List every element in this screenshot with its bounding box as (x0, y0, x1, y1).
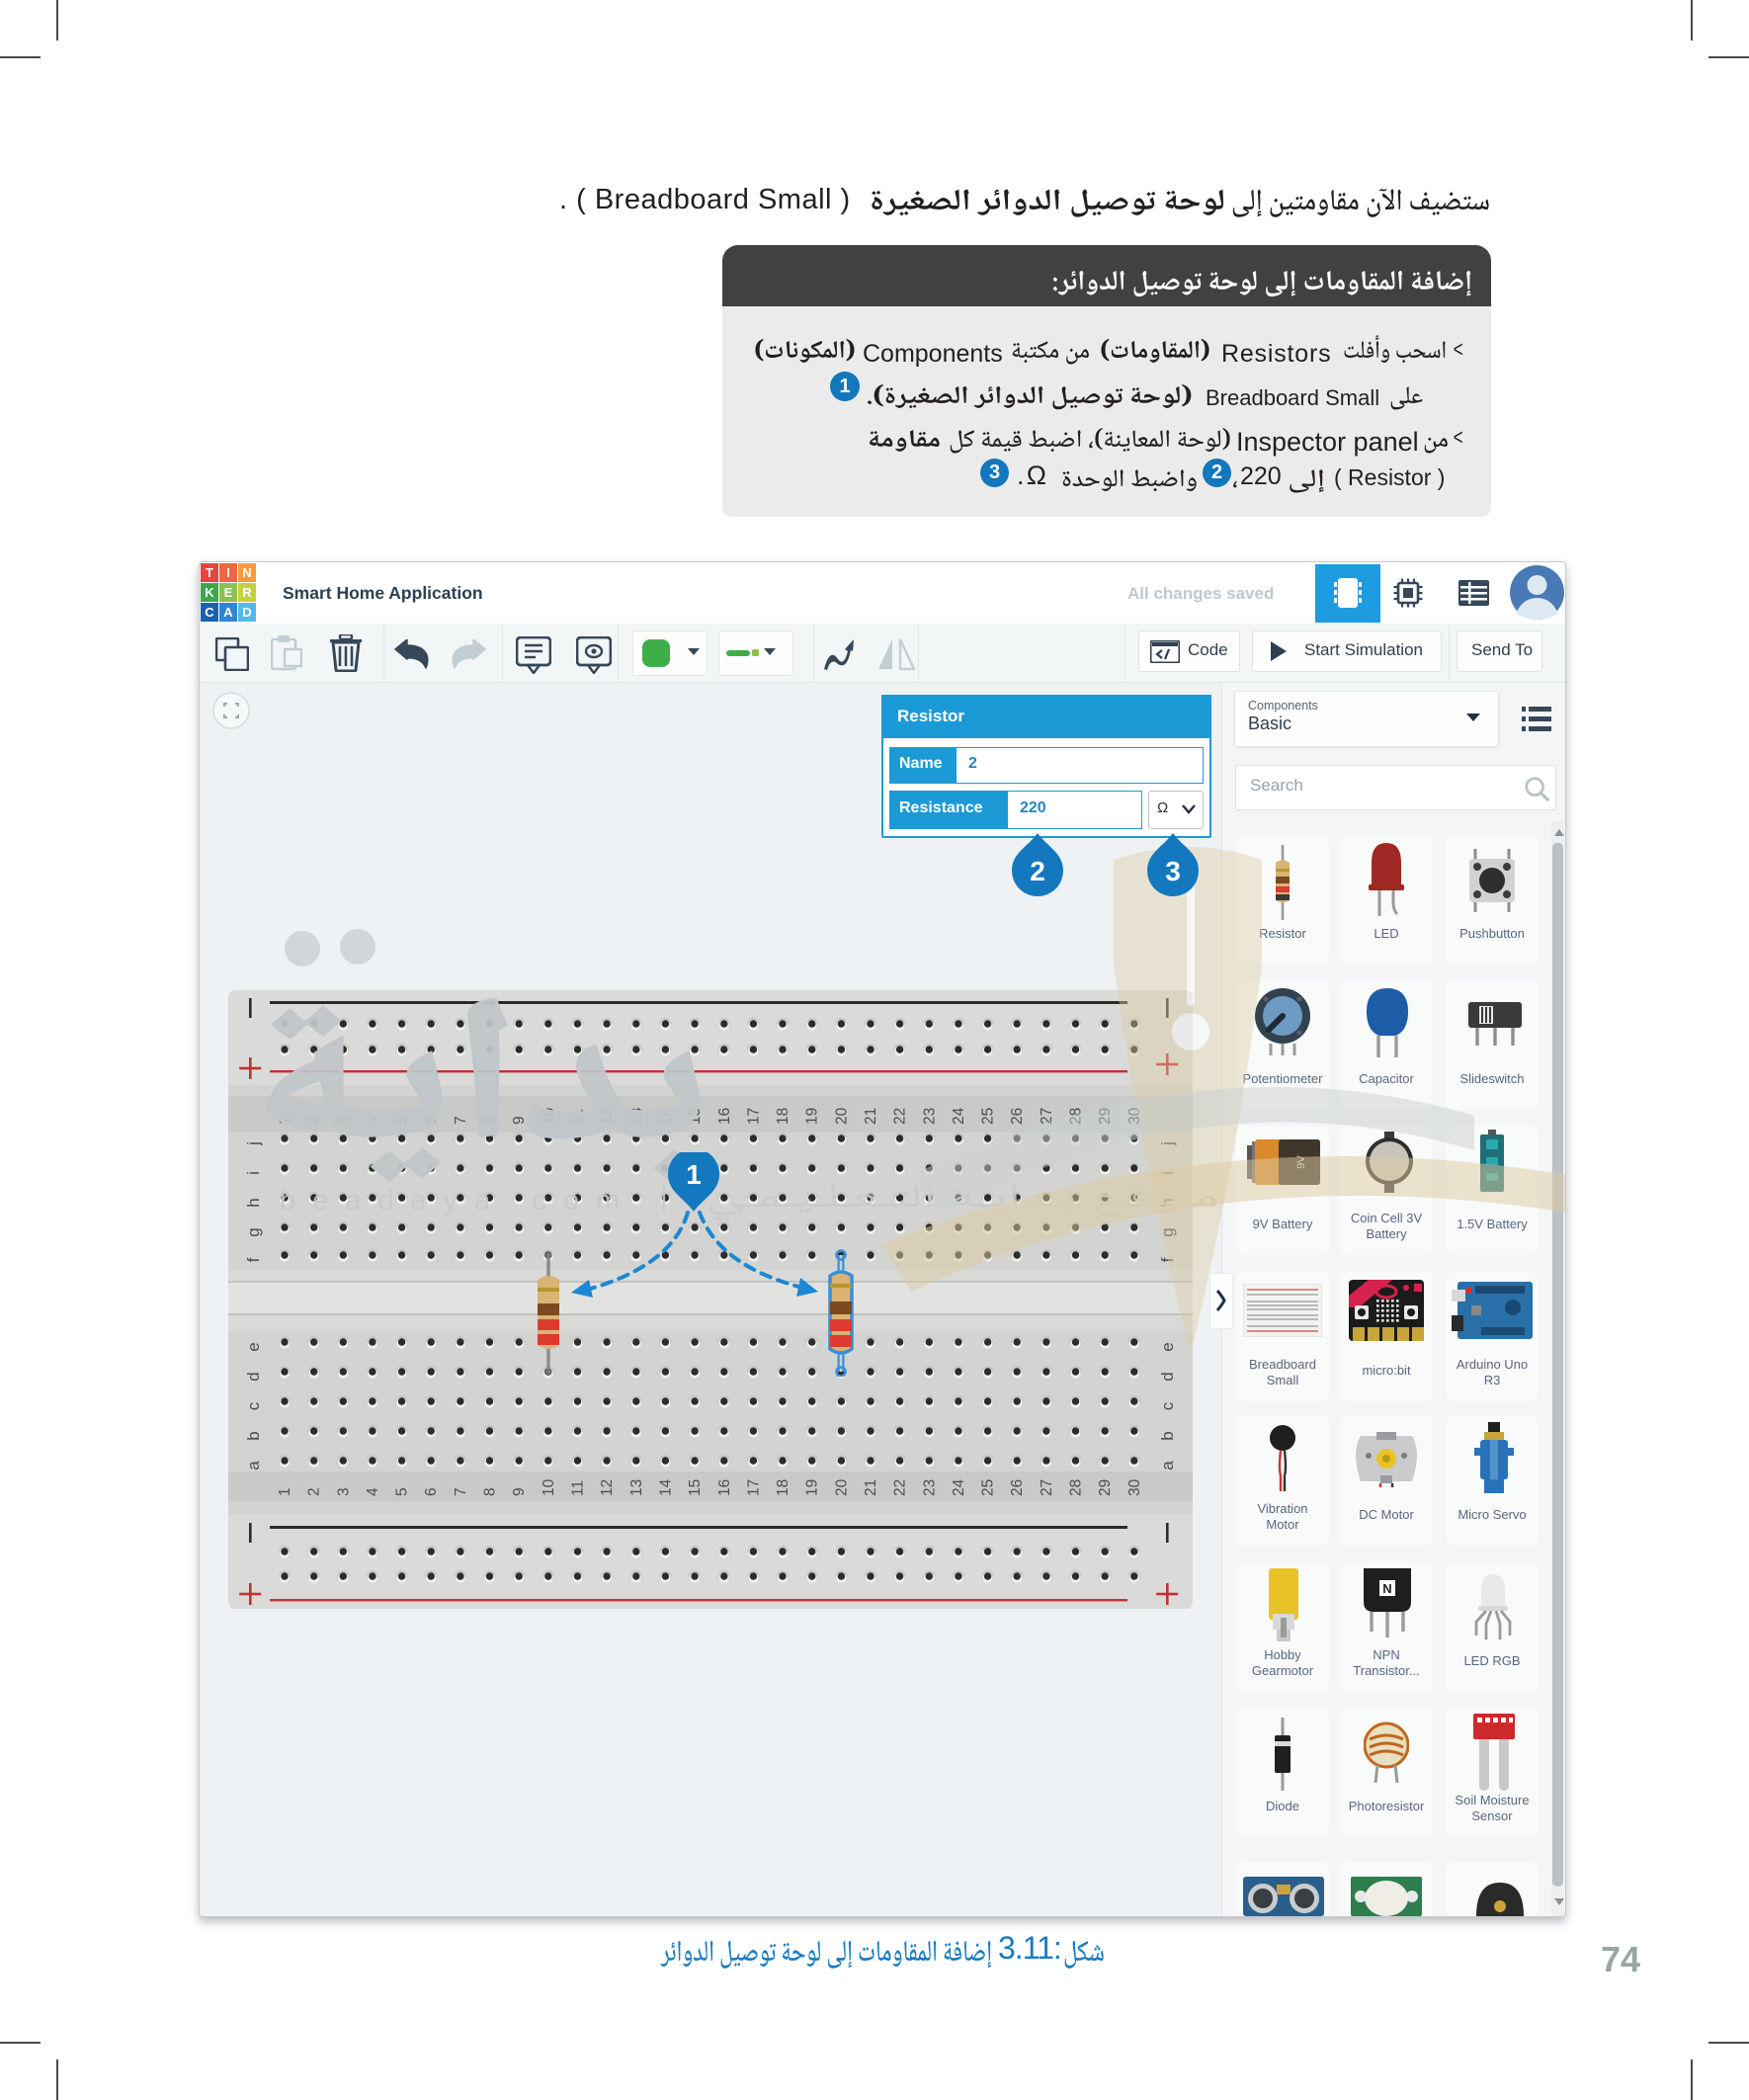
svg-text:25: 25 (980, 1108, 997, 1125)
svg-text:3: 3 (1165, 856, 1181, 886)
svg-text:18: 18 (775, 1479, 791, 1496)
svg-text:26: 26 (1009, 1479, 1026, 1496)
svg-text:i: i (244, 1171, 263, 1175)
svg-text:9: 9 (511, 1116, 528, 1125)
svg-text:h: h (244, 1198, 263, 1207)
svg-text:26: 26 (1009, 1108, 1026, 1125)
svg-text:1: 1 (277, 1116, 293, 1125)
svg-text:13: 13 (628, 1108, 645, 1125)
svg-text:27: 27 (1039, 1479, 1055, 1496)
svg-text:22: 22 (892, 1108, 909, 1125)
svg-text:11: 11 (570, 1480, 587, 1496)
svg-text:10: 10 (541, 1107, 557, 1125)
svg-text:14: 14 (657, 1478, 674, 1496)
svg-text:7: 7 (453, 1487, 469, 1496)
svg-text:12: 12 (599, 1479, 616, 1496)
svg-text:5: 5 (394, 1116, 411, 1125)
svg-text:8: 8 (482, 1116, 499, 1125)
svg-text:30: 30 (1126, 1478, 1143, 1496)
svg-text:12: 12 (599, 1108, 616, 1125)
svg-text:28: 28 (1068, 1108, 1085, 1125)
svg-text:19: 19 (804, 1108, 821, 1125)
svg-text:16: 16 (716, 1108, 733, 1125)
svg-text:27: 27 (1039, 1108, 1055, 1125)
svg-text:20: 20 (833, 1107, 850, 1125)
svg-text:f: f (244, 1257, 263, 1262)
svg-text:28: 28 (1068, 1479, 1085, 1496)
svg-text:j: j (244, 1141, 263, 1146)
svg-text:21: 21 (863, 1108, 879, 1125)
svg-text:20: 20 (833, 1478, 850, 1496)
svg-text:2: 2 (306, 1487, 323, 1496)
svg-text:a: a (244, 1461, 263, 1470)
svg-text:16: 16 (716, 1479, 733, 1496)
svg-text:21: 21 (863, 1479, 879, 1496)
svg-text:8: 8 (482, 1487, 499, 1496)
svg-text:N: N (1382, 1581, 1391, 1596)
svg-text:19: 19 (804, 1479, 821, 1496)
svg-text:9: 9 (511, 1487, 528, 1496)
svg-text:h: h (1158, 1198, 1177, 1207)
svg-text:b: b (1158, 1431, 1177, 1440)
svg-text:d: d (244, 1372, 263, 1381)
svg-text:c: c (244, 1401, 263, 1410)
svg-text:3: 3 (335, 1487, 352, 1496)
svg-text:c: c (1158, 1401, 1177, 1410)
svg-text:30: 30 (1126, 1107, 1143, 1125)
svg-text:11: 11 (570, 1109, 587, 1125)
svg-text:2: 2 (306, 1116, 323, 1125)
svg-text:29: 29 (1097, 1108, 1114, 1125)
svg-text:g: g (244, 1227, 263, 1236)
svg-text:3: 3 (335, 1116, 352, 1125)
svg-text:1: 1 (686, 1159, 702, 1190)
svg-text:1: 1 (277, 1487, 293, 1496)
svg-text:a: a (1158, 1461, 1177, 1470)
svg-text:2: 2 (1030, 856, 1045, 886)
svg-text:14: 14 (657, 1107, 674, 1125)
svg-text:6: 6 (423, 1487, 440, 1496)
svg-text:9V: 9V (1295, 1155, 1307, 1169)
svg-text:4: 4 (365, 1487, 381, 1496)
svg-text:f: f (1158, 1257, 1177, 1262)
svg-text:29: 29 (1097, 1479, 1114, 1496)
svg-text:4: 4 (365, 1116, 381, 1125)
svg-text:23: 23 (921, 1108, 938, 1125)
svg-text:e: e (1158, 1342, 1177, 1351)
svg-text:25: 25 (980, 1479, 997, 1496)
svg-text:18: 18 (775, 1108, 791, 1125)
svg-text:13: 13 (628, 1479, 645, 1496)
svg-text:24: 24 (951, 1107, 967, 1125)
svg-text:15: 15 (687, 1479, 704, 1496)
svg-text:10: 10 (541, 1478, 557, 1496)
svg-text:i: i (1158, 1171, 1177, 1175)
svg-text:g: g (1158, 1227, 1177, 1236)
svg-text:6: 6 (423, 1116, 440, 1125)
svg-text:22: 22 (892, 1479, 909, 1496)
svg-text:j: j (1158, 1141, 1177, 1146)
svg-text:24: 24 (951, 1478, 967, 1496)
svg-text:23: 23 (921, 1479, 938, 1496)
svg-text:17: 17 (745, 1108, 762, 1125)
svg-text:15: 15 (687, 1108, 704, 1125)
svg-text:17: 17 (745, 1479, 762, 1496)
svg-text:5: 5 (394, 1487, 411, 1496)
svg-text:b: b (244, 1431, 263, 1440)
svg-text:e: e (244, 1342, 263, 1351)
svg-text:7: 7 (453, 1116, 469, 1125)
svg-text:d: d (1158, 1372, 1177, 1381)
